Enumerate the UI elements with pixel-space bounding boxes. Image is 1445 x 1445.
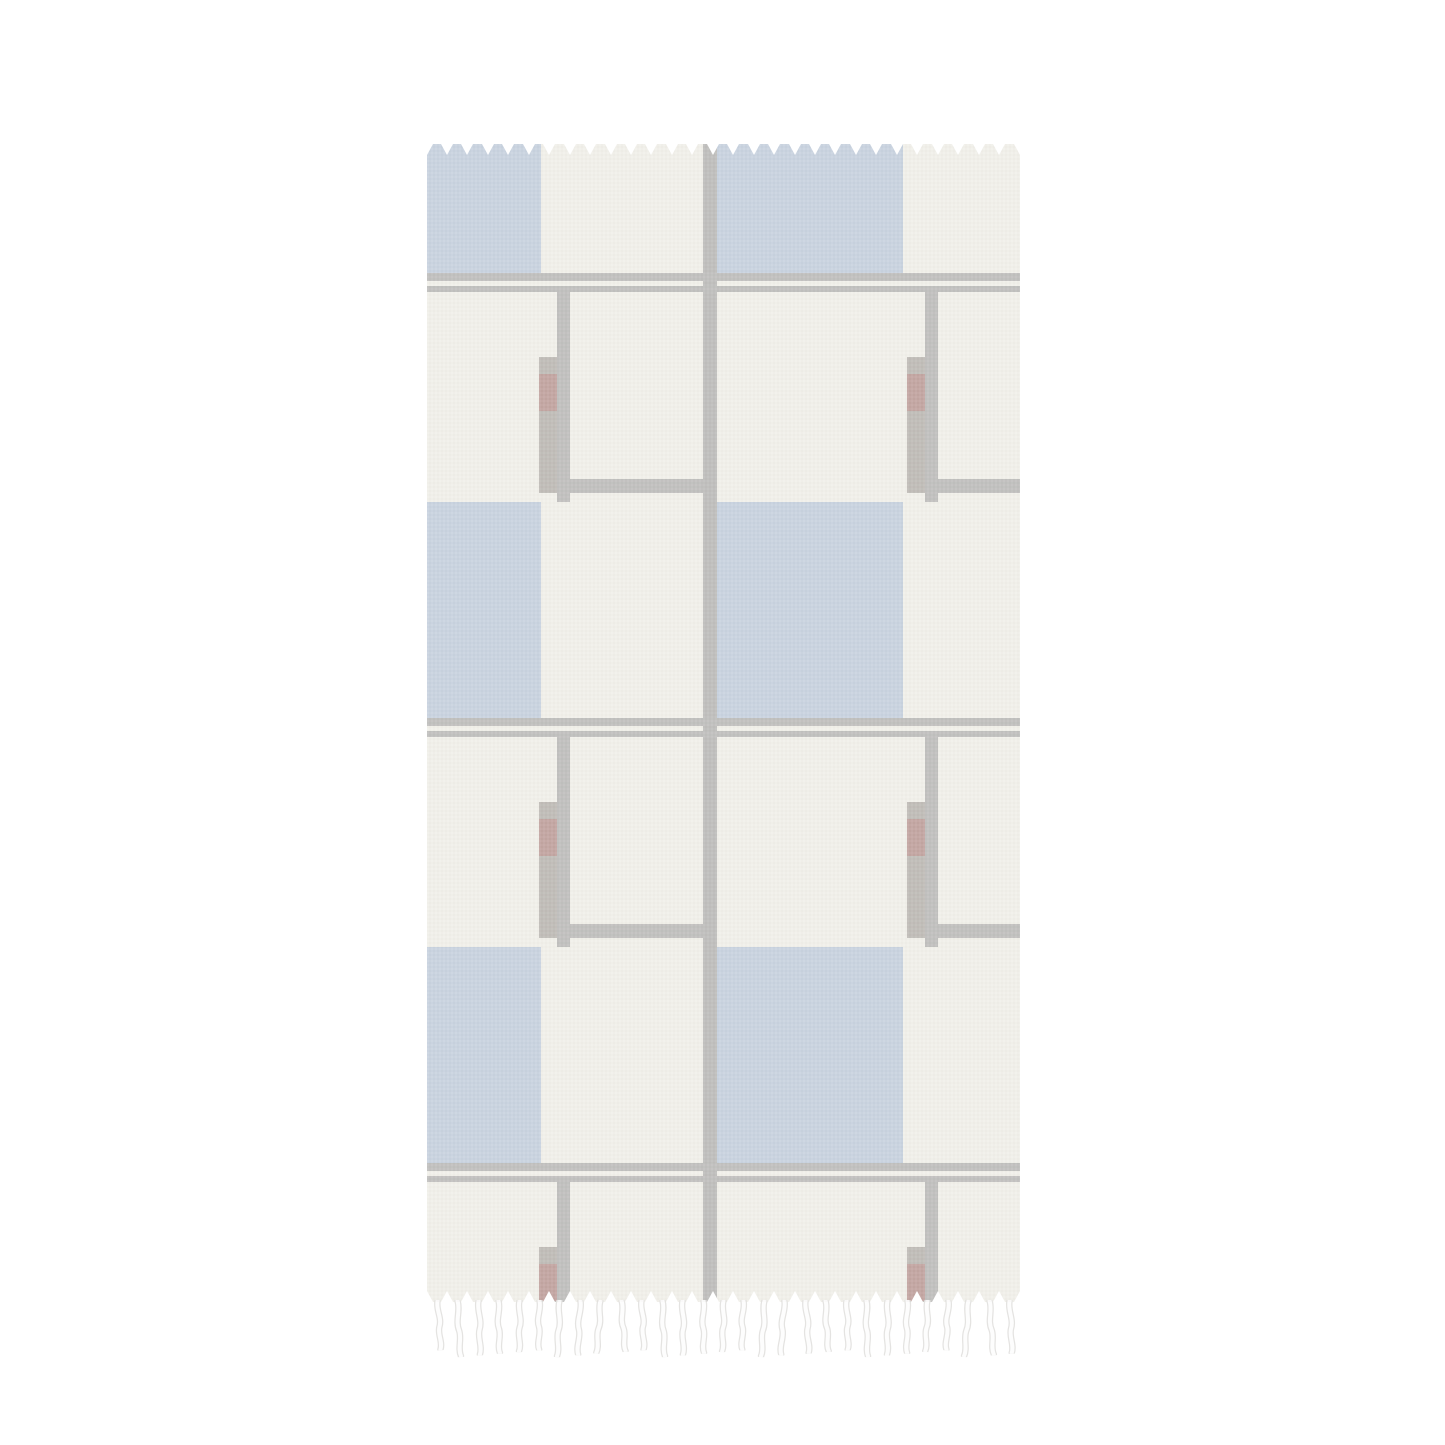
edge-notch <box>911 1291 923 1302</box>
edge-notch <box>891 144 903 155</box>
edge-notch <box>789 1291 801 1302</box>
tassel-strand <box>877 1300 898 1355</box>
edge-notch <box>707 144 719 155</box>
edge-notch <box>502 144 514 155</box>
edge-notch <box>911 144 923 155</box>
tassel-strand <box>771 1299 796 1356</box>
edge-notch <box>666 144 678 155</box>
edge-notch <box>973 1291 985 1302</box>
hook-vertical-line <box>557 1182 570 1302</box>
blue-square <box>717 947 903 1163</box>
edge-notch <box>564 144 576 155</box>
edge-notch <box>584 1291 596 1302</box>
edge-notch <box>686 1291 698 1302</box>
tassel-strand <box>693 1300 714 1354</box>
edge-notch <box>891 1291 903 1302</box>
edge-notch <box>625 144 637 155</box>
edge-notch <box>461 1291 473 1302</box>
edge-notch <box>543 144 555 155</box>
tassel-fringe-top <box>427 85 1020 144</box>
edge-notch <box>482 144 494 155</box>
tassel-strand <box>856 1300 878 1357</box>
tassel-strand <box>836 1300 859 1351</box>
hook-bottom-line <box>570 924 703 938</box>
tassel-strand <box>509 1300 530 1352</box>
edge-notch <box>993 1291 1005 1302</box>
edge-notch <box>666 1291 678 1302</box>
hook-vertical-line <box>925 292 938 502</box>
hook-bottom-line <box>570 479 703 493</box>
edge-notch <box>686 144 698 155</box>
blue-square <box>717 502 903 718</box>
edge-notch <box>605 144 617 155</box>
edge-notch <box>645 1291 657 1302</box>
edge-notch <box>441 144 453 155</box>
edge-notch <box>850 144 862 155</box>
tassel-strand <box>954 1299 979 1357</box>
edge-notch <box>564 1291 576 1302</box>
edge-notch <box>829 144 841 155</box>
edge-notch <box>727 1291 739 1302</box>
tassel-strand <box>488 1300 510 1354</box>
product-mockup-canvas <box>0 0 1445 1445</box>
blue-square <box>427 502 541 718</box>
edge-notch <box>427 144 433 155</box>
hook-vertical-line <box>925 1182 938 1302</box>
edge-notch <box>809 1291 821 1302</box>
edge-notch <box>427 1291 433 1302</box>
beach-towel <box>427 85 1020 1362</box>
blue-square <box>427 947 541 1163</box>
edge-notch <box>625 1291 637 1302</box>
edge-notch <box>789 144 801 155</box>
edge-notch <box>932 1291 944 1302</box>
tassel-strand <box>672 1300 694 1356</box>
tassel-fringe-bottom <box>427 1302 1020 1362</box>
edge-notch <box>502 1291 514 1302</box>
hook-bottom-line <box>938 924 1020 938</box>
tassel-strand <box>999 1299 1023 1354</box>
edge-notch <box>768 144 780 155</box>
edge-notch <box>932 144 944 155</box>
edge-notch <box>482 1291 494 1302</box>
edge-notch <box>461 144 473 155</box>
grid-line-horizontal <box>427 273 1020 281</box>
edge-notch <box>829 1291 841 1302</box>
accent-red-block <box>907 819 925 856</box>
edge-notch <box>523 144 535 155</box>
hook-vertical-line <box>557 292 570 502</box>
edge-notch <box>707 1291 719 1302</box>
hook-bottom-line <box>938 479 1020 493</box>
edge-notch <box>952 1291 964 1302</box>
accent-red-block <box>907 374 925 411</box>
accent-red-block <box>539 819 557 856</box>
hook-vertical-line <box>925 737 938 947</box>
edge-notch <box>1014 1291 1021 1302</box>
edge-notch <box>870 144 882 155</box>
edge-notch <box>523 1291 535 1302</box>
edge-notch <box>870 1291 882 1302</box>
edge-notch <box>645 144 657 155</box>
edge-notch <box>768 1291 780 1302</box>
edge-notch <box>748 144 760 155</box>
edge-notch <box>1014 144 1021 155</box>
edge-notch <box>605 1291 617 1302</box>
edge-notch <box>850 1291 862 1302</box>
edge-notch <box>809 144 821 155</box>
towel-fabric <box>427 144 1020 1302</box>
hook-vertical-line <box>557 737 570 947</box>
blue-square <box>427 144 541 273</box>
tassel-strand <box>587 1299 612 1354</box>
edge-notch <box>952 144 964 155</box>
tassel-strand <box>468 1300 491 1356</box>
edge-notch <box>584 144 596 155</box>
edge-notch <box>441 1291 453 1302</box>
edge-notch <box>543 1291 555 1302</box>
accent-red-block <box>539 374 557 411</box>
grid-line-horizontal <box>427 1163 1020 1171</box>
edge-notch <box>727 144 739 155</box>
grid-line-horizontal <box>427 718 1020 726</box>
edge-notch <box>973 144 985 155</box>
edge-notch <box>993 144 1005 155</box>
blue-square <box>717 144 903 273</box>
edge-notch <box>748 1291 760 1302</box>
